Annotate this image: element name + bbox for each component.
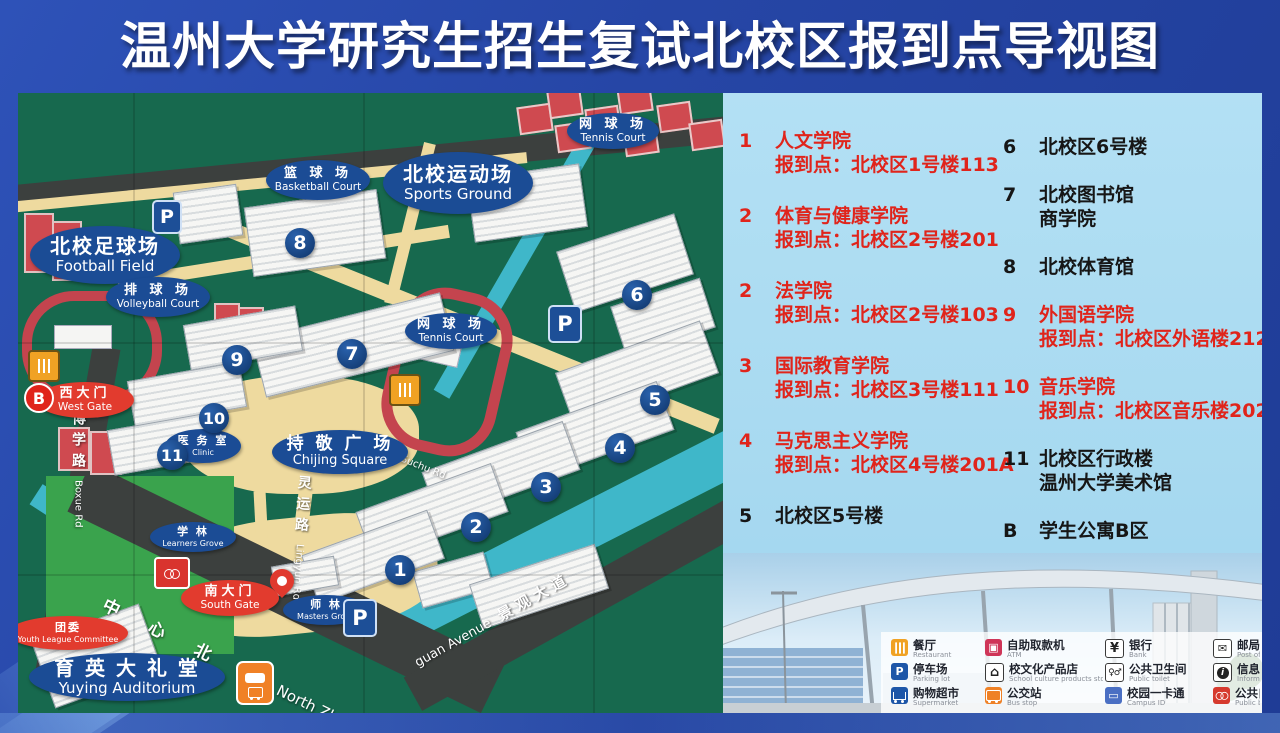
service-label: 公共卫生间Public toilet xyxy=(1129,663,1187,684)
parking-icon: P xyxy=(152,200,182,234)
service-label-cn: 银行 xyxy=(1129,639,1152,651)
legend-entry-c2-6: 6北校区6号楼 xyxy=(1003,135,1262,159)
label-en: Sports Ground xyxy=(404,186,512,203)
legend-entry-name: 外国语学院 xyxy=(1039,303,1262,327)
service-label: 邮局Post office xyxy=(1237,639,1260,660)
map-grid-line xyxy=(593,93,595,713)
label-en: Chijing Square xyxy=(293,454,388,469)
service-label: 停车场Parking lot xyxy=(913,663,950,684)
service-label: 餐厅Restaurant xyxy=(913,639,951,660)
legend-entry-text: 北校体育馆 xyxy=(1039,255,1134,279)
service-information-consultation: i信息咨询Information consultation xyxy=(1213,663,1260,685)
legend-entry-detail: 报到点：北校区4号楼201A xyxy=(775,453,1014,477)
legend-entry-name: 法学院 xyxy=(775,279,999,303)
legend-entry-text: 北校区6号楼 xyxy=(1039,135,1147,159)
map-label-yuying-auditorium: 育 英 大 礼 堂Yuying Auditorium xyxy=(29,653,225,701)
service-label-en: Public bicycle xyxy=(1235,699,1260,708)
legend-entry-detail: 商学院 xyxy=(1039,207,1134,231)
service-school-culture-products-store: ⌂校文化产品店School culture products store xyxy=(985,663,1103,685)
legend-entry-number: 5 xyxy=(739,504,775,528)
service-label-cn: 校文化产品店 xyxy=(1009,663,1103,675)
map-marker-7: 7 xyxy=(337,339,367,369)
map-label-south-gate: 南大门South Gate xyxy=(181,580,279,616)
legend-entry-number: B xyxy=(1003,519,1039,543)
map-label-football-field: 北校足球场Football Field xyxy=(30,226,180,284)
legend-entry-c1-2: 2法学院报到点：北校区2号楼103 xyxy=(739,279,1014,327)
map-label-chijing-square: 持 敬 广 场Chijing Square xyxy=(272,430,408,474)
map-marker-1: 1 xyxy=(385,555,415,585)
map-grid-line xyxy=(18,342,723,344)
parking-icon: P xyxy=(548,305,582,343)
map-marker-5: 5 xyxy=(640,385,670,415)
legend-entry-name: 国际教育学院 xyxy=(775,354,999,378)
parking-icon: P xyxy=(343,599,377,637)
decor-streak xyxy=(0,713,1280,733)
legend-entry-name: 北校图书馆 xyxy=(1039,183,1134,207)
service-parking-lot: P停车场Parking lot xyxy=(891,663,983,685)
label-cn: 学 林 xyxy=(177,526,209,539)
legend-entry-detail: 报到点：北校区外语楼212 xyxy=(1039,327,1262,351)
map-shape xyxy=(546,93,584,119)
legend-entry-text: 北校区5号楼 xyxy=(775,504,883,528)
bus-glyph xyxy=(248,687,263,698)
label-en: West Gate xyxy=(58,401,112,413)
service-label: 银行Bank xyxy=(1129,639,1152,660)
legend-entry-text: 北校图书馆商学院 xyxy=(1039,183,1134,231)
toilet-icon: ♀♂ xyxy=(1105,663,1124,682)
legend-entry-name: 北校体育馆 xyxy=(1039,255,1134,279)
label-cn: 网 球 场 xyxy=(579,118,647,133)
service-label-cn: 信息咨询 xyxy=(1237,663,1260,675)
legend-entry-c2-10: 10音乐学院报到点：北校区音乐楼202 xyxy=(1003,375,1262,423)
service-supermarket: 购物超市Supermarket xyxy=(891,687,983,709)
map-label-tennis-court-top: 网 球 场Tennis Court xyxy=(567,113,659,149)
legend-entry-name: 马克思主义学院 xyxy=(775,429,1014,453)
yen-icon: ¥ xyxy=(1105,639,1124,658)
service-public-toilet: ♀♂公共卫生间Public toilet xyxy=(1105,663,1211,685)
legend-entry-number: 3 xyxy=(739,354,775,402)
service-label-en: ATM xyxy=(1007,651,1065,660)
label-cn: 师 林 xyxy=(310,599,342,612)
legend-entry-detail: 报到点：北校区2号楼201 xyxy=(775,228,999,252)
cart-icon xyxy=(891,687,908,704)
legend-entry-number: 4 xyxy=(739,429,775,477)
road-label-cn: 博学路 xyxy=(68,411,88,474)
label-cn: 网 球 场 xyxy=(417,318,485,333)
legend-entry-number: 6 xyxy=(1003,135,1039,159)
legend-entry-number: 2 xyxy=(739,279,775,327)
service-label: 校文化产品店School culture products store xyxy=(1009,663,1103,684)
service-label: 自助取款机ATM xyxy=(1007,639,1065,660)
service-atm: ▣自助取款机ATM xyxy=(985,639,1103,661)
legend-entry-detail: 报到点：北校区1号楼113 xyxy=(775,153,999,177)
map-shape xyxy=(688,119,723,151)
label-en: South Gate xyxy=(200,599,259,611)
legend-panel: 1人文学院报到点：北校区1号楼1132体育与健康学院报到点：北校区2号楼2012… xyxy=(723,93,1262,713)
label-cn: 持 敬 广 场 xyxy=(287,435,394,455)
map-label-basketball-court: 篮 球 场Basketball Court xyxy=(266,160,370,200)
map-shape xyxy=(54,325,112,349)
label-cn: 北校足球场 xyxy=(50,235,160,258)
legend-entry-name: 体育与健康学院 xyxy=(775,204,999,228)
legend-entry-number: 9 xyxy=(1003,303,1039,351)
legend-entry-c1-2: 2体育与健康学院报到点：北校区2号楼201 xyxy=(739,204,1014,252)
card-icon: ▭ xyxy=(1105,687,1122,704)
poster-title: 温州大学研究生招生复试北校区报到点导视图 xyxy=(0,0,1280,92)
map-marker-10: 10 xyxy=(199,403,229,433)
map-marker-9: 9 xyxy=(222,345,252,375)
service-label-en: Public toilet xyxy=(1129,675,1187,684)
restaurant-icon xyxy=(28,350,60,382)
road-label-en: Lingyun Rd xyxy=(290,544,305,601)
legend-entry-c2-11: 11北校区行政楼温州大学美术馆 xyxy=(1003,447,1262,495)
legend-entry-c2-B: B学生公寓B区 xyxy=(1003,519,1262,543)
services-legend: 餐厅Restaurant▣自助取款机ATM¥银行Bank✉邮局Post offi… xyxy=(881,632,1262,713)
label-en: Tennis Court xyxy=(419,332,484,344)
parking-icon: P xyxy=(891,663,908,680)
map-marker-8: 8 xyxy=(285,228,315,258)
road-label-en: North Zhongxin Road xyxy=(274,681,425,713)
service-label-cn: 自助取款机 xyxy=(1007,639,1065,651)
label-cn: 排 球 场 xyxy=(124,284,192,299)
legend-entry-c1-5: 5北校区5号楼 xyxy=(739,504,1014,528)
legend-entry-detail: 报到点：北校区音乐楼202 xyxy=(1039,399,1262,423)
legend-entry-text: 法学院报到点：北校区2号楼103 xyxy=(775,279,999,327)
label-cn: 北校运动场 xyxy=(403,163,513,186)
label-en: Learners Grove xyxy=(162,539,223,548)
legend-entry-number: 1 xyxy=(739,129,775,177)
service-label-cn: 公共自行车 xyxy=(1235,687,1260,699)
legend-entry-c2-8: 8北校体育馆 xyxy=(1003,255,1262,279)
legend-entry-number: 11 xyxy=(1003,447,1039,495)
legend-entry-name: 人文学院 xyxy=(775,129,999,153)
map-marker-2: 2 xyxy=(461,512,491,542)
service-restaurant: 餐厅Restaurant xyxy=(891,639,983,661)
label-cn: 团委 xyxy=(55,622,81,635)
service-label-en: School culture products store xyxy=(1009,675,1103,684)
service-label-en: Information consultation xyxy=(1237,675,1260,684)
service-post-office: ✉邮局Post office xyxy=(1213,639,1260,661)
legend-entry-number: 10 xyxy=(1003,375,1039,423)
legend-entry-c1-1: 1人文学院报到点：北校区1号楼113 xyxy=(739,129,1014,177)
service-label-en: Bus stop xyxy=(1007,699,1042,708)
bus-window xyxy=(245,673,265,683)
label-en: Basketball Court xyxy=(275,181,362,193)
legend-entry-text: 学生公寓B区 xyxy=(1039,519,1148,543)
info-icon: i xyxy=(1213,663,1232,682)
campus-guide-poster: 温州大学研究生招生复试北校区报到点导视图 博学路Boxue Rd灵运路Lingy… xyxy=(0,0,1280,733)
utensils-icon xyxy=(891,639,908,656)
legend-entry-name: 北校区行政楼 xyxy=(1039,447,1172,471)
service-label-cn: 校园一卡通 xyxy=(1127,687,1185,699)
service-label-cn: 购物超市 xyxy=(913,687,959,699)
legend-entry-text: 外国语学院报到点：北校区外语楼212 xyxy=(1039,303,1262,351)
legend-entry-number: 2 xyxy=(739,204,775,252)
service-bank: ¥银行Bank xyxy=(1105,639,1211,661)
map-marker-3: 3 xyxy=(531,472,561,502)
map-marker-6: 6 xyxy=(622,280,652,310)
legend-entry-text: 北校区行政楼温州大学美术馆 xyxy=(1039,447,1172,495)
legend-entry-detail: 报到点：北校区2号楼103 xyxy=(775,303,999,327)
legend-entry-c2-7: 7北校图书馆商学院 xyxy=(1003,183,1262,231)
legend-entry-name: 学生公寓B区 xyxy=(1039,519,1148,543)
legend-entry-number: 7 xyxy=(1003,183,1039,231)
utensils-glyph xyxy=(38,359,50,373)
campus-map: 博学路Boxue Rd灵运路Lingyun Rd溯初路Suchu Rd中 心 北… xyxy=(18,93,723,713)
restaurant-icon xyxy=(389,374,421,406)
service-label-cn: 公交站 xyxy=(1007,687,1042,699)
b-marker-icon: B xyxy=(24,383,54,413)
bus-icon xyxy=(985,687,1002,704)
legend-entry-text: 人文学院报到点：北校区1号楼113 xyxy=(775,129,999,177)
service-label: 购物超市Supermarket xyxy=(913,687,959,708)
legend-entry-c1-3: 3国际教育学院报到点：北校区3号楼111 xyxy=(739,354,1014,402)
map-label-sports-ground: 北校运动场Sports Ground xyxy=(383,152,533,214)
road-label-en: Boxue Rd xyxy=(73,480,84,528)
legend-entry-name: 北校区6号楼 xyxy=(1039,135,1147,159)
service-label: 公交站Bus stop xyxy=(1007,687,1042,708)
post-icon: ✉ xyxy=(1213,639,1232,658)
legend-column-1: 1人文学院报到点：北校区1号楼1132体育与健康学院报到点：北校区2号楼2012… xyxy=(739,129,1014,528)
service-label-cn: 邮局 xyxy=(1237,639,1260,651)
legend-entry-name: 北校区5号楼 xyxy=(775,504,883,528)
label-en: Football Field xyxy=(56,258,155,275)
legend-entry-name: 音乐学院 xyxy=(1039,375,1262,399)
bus-icon xyxy=(236,661,274,705)
legend-entry-text: 音乐学院报到点：北校区音乐楼202 xyxy=(1039,375,1262,423)
map-label-learners-grove: 学 林Learners Grove xyxy=(150,522,236,552)
label-cn: 南大门 xyxy=(204,585,255,600)
legend-column-2: 6北校区6号楼7北校图书馆商学院8北校体育馆9外国语学院报到点：北校区外语楼21… xyxy=(1003,135,1262,543)
legend-entry-detail: 报到点：北校区3号楼111 xyxy=(775,378,999,402)
legend-entry-text: 马克思主义学院报到点：北校区4号楼201A xyxy=(775,429,1014,477)
label-en: Tennis Court xyxy=(581,132,646,144)
label-cn: 医 务 室 xyxy=(178,435,229,448)
service-public-bicycle: 公共自行车Public bicycle xyxy=(1213,687,1260,709)
service-label-en: Post office xyxy=(1237,651,1260,660)
service-campus-id: ▭校园一卡通Campus ID xyxy=(1105,687,1211,709)
utensils-glyph xyxy=(399,383,411,397)
legend-entry-text: 国际教育学院报到点：北校区3号楼111 xyxy=(775,354,999,402)
service-label: 公共自行车Public bicycle xyxy=(1235,687,1260,708)
service-label: 信息咨询Information consultation xyxy=(1237,663,1260,684)
label-en: Youth League Committee xyxy=(18,635,118,644)
label-en: Volleyball Court xyxy=(117,298,199,310)
legend-entry-number: 8 xyxy=(1003,255,1039,279)
map-shape xyxy=(616,93,654,115)
atm-icon: ▣ xyxy=(985,639,1002,656)
legend-entry-c2-9: 9外国语学院报到点：北校区外语楼212 xyxy=(1003,303,1262,351)
store-icon: ⌂ xyxy=(985,663,1004,682)
legend-entry-c1-4: 4马克思主义学院报到点：北校区4号楼201A xyxy=(739,429,1014,477)
map-marker-11: 11 xyxy=(157,440,187,470)
map-label-volleyball-court: 排 球 场Volleyball Court xyxy=(106,277,210,317)
service-label-cn: 停车场 xyxy=(913,663,950,675)
bicycle-glyph xyxy=(164,569,180,578)
service-label-en: Bank xyxy=(1129,651,1152,660)
service-label-cn: 公共卫生间 xyxy=(1129,663,1187,675)
bike-icon xyxy=(1213,687,1230,704)
label-en: Yuying Auditorium xyxy=(59,680,196,697)
service-label-en: Restaurant xyxy=(913,651,951,660)
map-grid-line xyxy=(18,574,723,576)
label-cn: 篮 球 场 xyxy=(284,167,352,182)
legend-entry-detail: 温州大学美术馆 xyxy=(1039,471,1172,495)
map-marker-4: 4 xyxy=(605,433,635,463)
service-label: 校园一卡通Campus ID xyxy=(1127,687,1185,708)
service-bus-stop: 公交站Bus stop xyxy=(985,687,1103,709)
map-label-tennis-court-mid: 网 球 场Tennis Court xyxy=(405,313,497,349)
service-label-cn: 餐厅 xyxy=(913,639,951,651)
service-label-en: Supermarket xyxy=(913,699,959,708)
label-en: Clinic xyxy=(192,448,214,457)
label-cn: 西大门 xyxy=(59,387,110,402)
bicycle-icon xyxy=(154,557,190,589)
map-building xyxy=(173,184,244,244)
legend-entry-text: 体育与健康学院报到点：北校区2号楼201 xyxy=(775,204,999,252)
service-label-en: Parking lot xyxy=(913,675,950,684)
service-label-en: Campus ID xyxy=(1127,699,1185,708)
label-cn: 育 英 大 礼 堂 xyxy=(54,657,200,680)
road-label-boxue-rd: 博学路Boxue Rd xyxy=(68,411,88,528)
